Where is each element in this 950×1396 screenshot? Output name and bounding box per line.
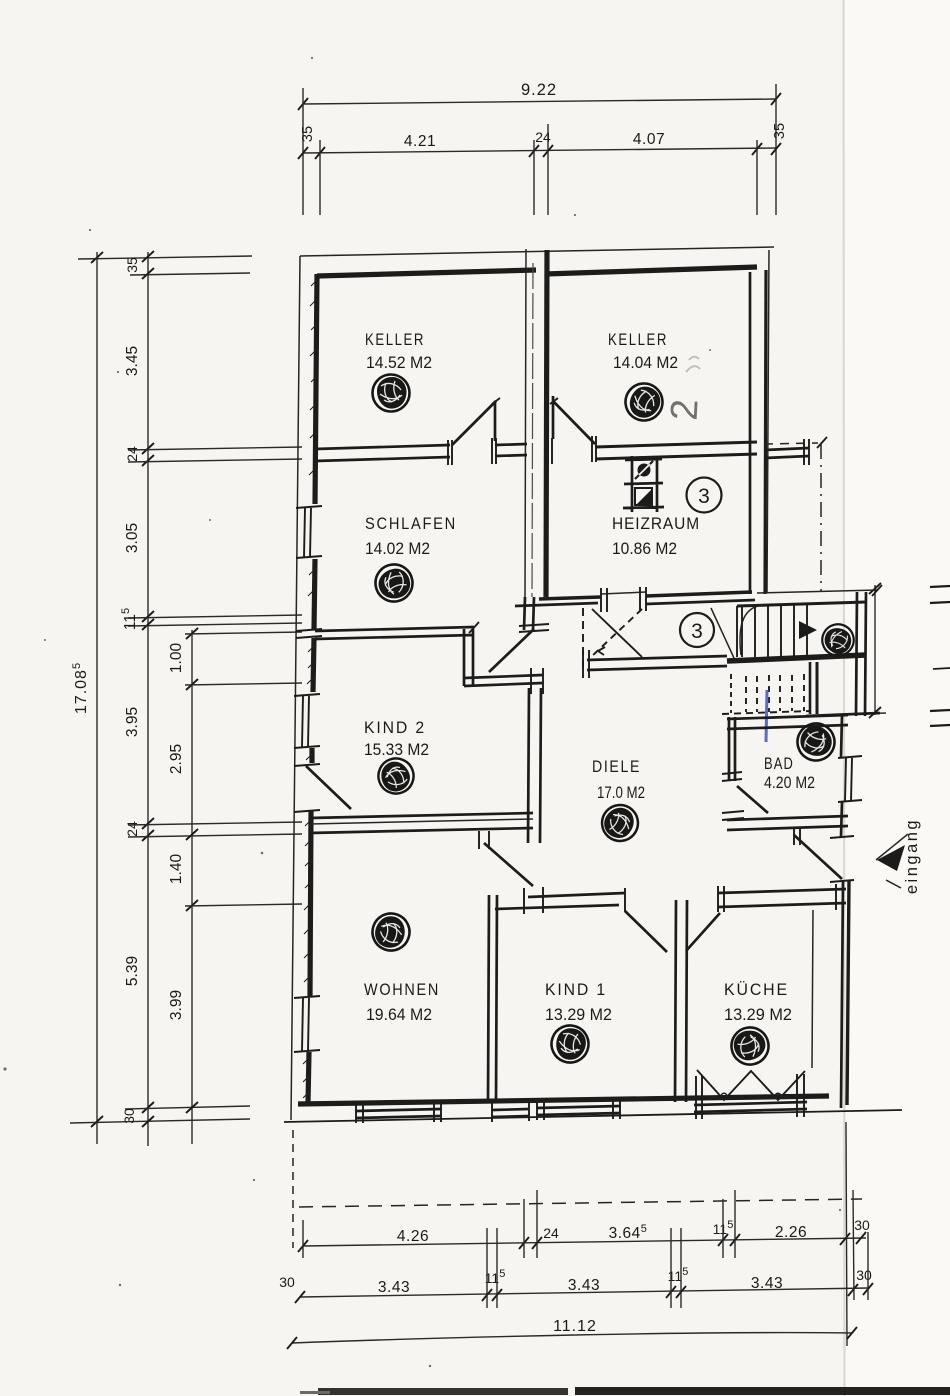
svg-text:24: 24 <box>124 821 140 837</box>
svg-text:13.29 M2: 13.29 M2 <box>545 1005 612 1024</box>
svg-text:30: 30 <box>279 1274 295 1290</box>
svg-text:14.52 M2: 14.52 M2 <box>366 353 432 372</box>
svg-text:35: 35 <box>300 126 316 142</box>
svg-text:3: 3 <box>691 620 703 643</box>
svg-text:14.04 M2: 14.04 M2 <box>613 353 678 372</box>
svg-text:2.95: 2.95 <box>168 744 185 774</box>
svg-text:SCHLAFEN: SCHLAFEN <box>365 514 457 533</box>
svg-text:10.86 M2: 10.86 M2 <box>612 539 677 558</box>
svg-text:35: 35 <box>772 123 788 139</box>
svg-text:1.40: 1.40 <box>168 854 185 885</box>
svg-text:5.39: 5.39 <box>124 956 141 986</box>
svg-text:19.64 M2: 19.64 M2 <box>366 1005 432 1024</box>
svg-text:4.26: 4.26 <box>397 1228 429 1245</box>
svg-text:14.02 M2: 14.02 M2 <box>365 539 430 558</box>
svg-text:eingang: eingang <box>903 818 921 894</box>
svg-text:11.12: 11.12 <box>553 1318 597 1335</box>
svg-text:KIND 1: KIND 1 <box>545 980 607 999</box>
svg-text:30: 30 <box>854 1217 870 1233</box>
svg-text:3.45: 3.45 <box>124 346 141 376</box>
svg-text:1.00: 1.00 <box>168 643 185 674</box>
svg-text:3.05: 3.05 <box>124 523 141 553</box>
svg-text:2.26: 2.26 <box>775 1224 807 1241</box>
svg-text:KÜCHE: KÜCHE <box>724 980 789 999</box>
svg-text:WOHNEN: WOHNEN <box>364 980 440 999</box>
svg-text:BAD: BAD <box>764 754 794 773</box>
svg-text:KIND 2: KIND 2 <box>364 718 426 737</box>
svg-text:9.22: 9.22 <box>521 81 557 99</box>
svg-text:HEIZRAUM: HEIZRAUM <box>612 514 700 533</box>
svg-text:4.07: 4.07 <box>633 131 665 148</box>
svg-text:35: 35 <box>124 257 140 273</box>
svg-text:3.43: 3.43 <box>378 1279 410 1296</box>
svg-text:24: 24 <box>124 446 140 462</box>
svg-text:3.43: 3.43 <box>751 1275 783 1292</box>
svg-text:3.43: 3.43 <box>568 1277 600 1294</box>
svg-text:30: 30 <box>856 1267 872 1283</box>
svg-text:3.99: 3.99 <box>168 990 185 1020</box>
svg-text:KELLER: KELLER <box>365 330 425 349</box>
svg-text:13.29 M2: 13.29 M2 <box>724 1005 792 1024</box>
svg-text:2: 2 <box>664 398 707 421</box>
svg-text:4.20 M2: 4.20 M2 <box>764 773 815 792</box>
svg-text:17.085: 17.085 <box>71 662 90 714</box>
svg-text:15.33 M2: 15.33 M2 <box>364 740 429 759</box>
svg-text:DIELE: DIELE <box>592 757 641 776</box>
svg-text:KELLER: KELLER <box>608 330 668 349</box>
svg-text:24: 24 <box>543 1225 559 1241</box>
svg-text:4.21: 4.21 <box>404 133 436 150</box>
svg-text:30: 30 <box>121 1108 137 1124</box>
svg-text:17.0 M2: 17.0 M2 <box>597 783 645 802</box>
svg-text:3.95: 3.95 <box>124 707 141 737</box>
svg-text:3: 3 <box>698 485 710 508</box>
